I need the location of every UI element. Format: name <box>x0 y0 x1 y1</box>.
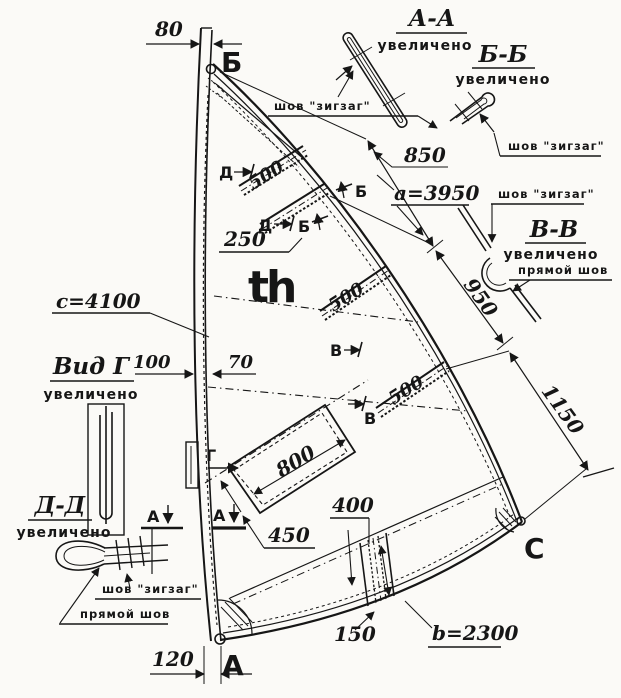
note-zigzag-top-label: шов "зигзаг" <box>274 99 371 113</box>
dim-c4100-label: c=4100 <box>56 289 141 313</box>
detail-aa-sub: увеличено <box>378 38 473 54</box>
mark-d1: Д <box>219 163 233 182</box>
mark-b1: Б <box>355 182 367 201</box>
detail-vidg-sub: увеличено <box>44 387 139 403</box>
dim-70-label: 70 <box>228 352 254 373</box>
detail-bb-sub: увеличено <box>456 72 551 88</box>
dim-100-label: 100 <box>133 352 171 373</box>
detail-aa-title: А-А <box>406 5 455 32</box>
detail-vv-note-zigzag: шов "зигзаг" <box>498 187 595 201</box>
detail-vv-title: В-В <box>529 216 578 243</box>
dim-b2300-label: b=2300 <box>432 621 518 645</box>
drawing-page: 800 th Б А C 80 120 100 70 c=4100 500 50… <box>0 0 621 698</box>
dim-150-label: 150 <box>334 622 376 646</box>
mark-a1: А <box>147 507 160 526</box>
detail-vv-sub: увеличено <box>504 247 599 263</box>
detail-dd-title: Д-Д <box>34 492 86 519</box>
clew-corner-label: C <box>524 532 545 565</box>
mark-d2: Д <box>258 216 272 235</box>
tack-corner-label: А <box>222 649 244 682</box>
detail-vv-note-straight: прямой шов <box>518 263 608 277</box>
dim-120-label: 120 <box>152 647 194 671</box>
dim-400-label: 400 <box>332 493 374 517</box>
dim-80-label: 80 <box>154 17 183 41</box>
dim-450-label: 450 <box>268 523 310 547</box>
dim-850-label: 850 <box>403 143 446 167</box>
mark-a2: А <box>213 506 226 525</box>
mark-b2: Б <box>298 217 310 236</box>
detail-dd-sub: увеличено <box>17 525 112 541</box>
mark-g: Г <box>206 446 216 465</box>
detail-bb-title: Б-Б <box>478 41 528 68</box>
mark-v1: В <box>330 341 342 360</box>
detail-bb-note: шов "зигзаг" <box>508 139 605 153</box>
detail-dd-note-zigzag: шов "зигзаг" <box>102 582 199 596</box>
mark-v2: В <box>364 409 376 428</box>
dim-a3950-label: a=3950 <box>394 181 479 205</box>
detail-dd-note-straight: прямой шов <box>80 607 170 621</box>
sail-pattern-drawing: 800 th Б А C 80 120 100 70 c=4100 500 50… <box>0 0 621 698</box>
detail-vidg-title: Вид Г <box>52 353 131 380</box>
sail-logo: th <box>248 262 294 313</box>
